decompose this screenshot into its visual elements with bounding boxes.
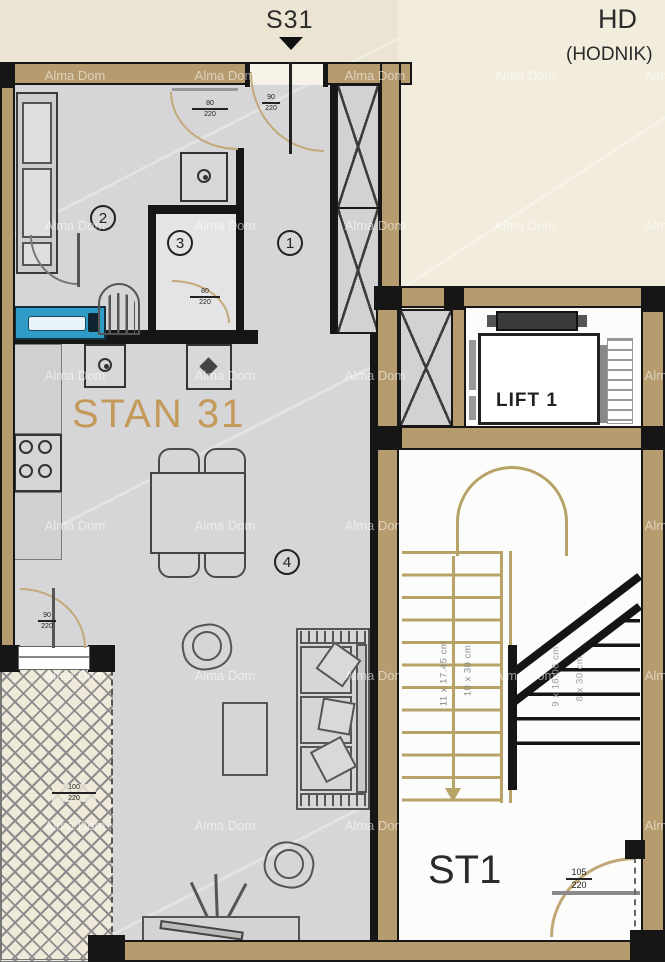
wc-top-wall bbox=[148, 205, 240, 214]
corridor-wall-vertical bbox=[380, 62, 401, 308]
bathtub-inner bbox=[28, 316, 86, 331]
unit-marker-arrow bbox=[279, 37, 303, 50]
wall-post bbox=[374, 426, 402, 450]
wall-post bbox=[374, 286, 402, 310]
wc-left-wall bbox=[148, 205, 156, 332]
wall-post bbox=[88, 935, 125, 962]
outer-wall-left bbox=[0, 62, 15, 654]
lift-guide-rail bbox=[469, 340, 476, 390]
wall-post bbox=[625, 840, 645, 859]
lift-guide-rail bbox=[600, 345, 607, 423]
room-number-4: 4 bbox=[274, 549, 300, 575]
installation-shaft bbox=[399, 309, 453, 427]
dining-table bbox=[150, 472, 246, 554]
outer-wall-bottom bbox=[88, 940, 665, 962]
radiator bbox=[98, 283, 140, 335]
wall-post bbox=[0, 62, 15, 88]
sofa-cushion bbox=[317, 697, 355, 735]
stair-door-leaf bbox=[552, 891, 640, 895]
armchair-seat bbox=[274, 849, 304, 879]
entrance-door-dim: 90220 bbox=[262, 94, 280, 112]
stair-spine bbox=[500, 551, 503, 803]
wall-post bbox=[444, 286, 464, 310]
wall-post bbox=[641, 286, 665, 312]
room-door-dim: 80220 bbox=[192, 100, 228, 118]
wall-post bbox=[0, 645, 20, 672]
lift-wall-inner bbox=[451, 307, 466, 428]
room-number-1: 1 bbox=[277, 230, 303, 256]
balcony-window bbox=[18, 646, 90, 670]
stair-note-left-tread: 10 x 30 cm bbox=[463, 606, 474, 736]
stair-door-dim: 105220 bbox=[566, 868, 592, 890]
wall-post bbox=[88, 645, 115, 672]
stair-door-dashed bbox=[634, 857, 636, 937]
corridor-wall-horizontal bbox=[380, 286, 665, 308]
room-number-2: 2 bbox=[90, 205, 116, 231]
room-door-leaf bbox=[172, 88, 238, 91]
stove-burner bbox=[19, 440, 33, 454]
stove-burner bbox=[38, 440, 52, 454]
zone-code-label: HD bbox=[598, 4, 637, 35]
unit-marker-label: S31 bbox=[266, 6, 313, 35]
washing-machine-dot bbox=[104, 364, 109, 369]
balcony-floor bbox=[0, 650, 113, 962]
stair-note-left-riser: 11 x 17.45 cm bbox=[439, 609, 450, 739]
kitchen-counter bbox=[14, 344, 62, 434]
wardrobe-shelf bbox=[22, 168, 52, 238]
hall-partition-wall bbox=[236, 148, 244, 332]
stairwell-label: ST1 bbox=[428, 848, 501, 893]
stair-note-right-riser: 9 x 18.06 cm bbox=[551, 612, 562, 742]
floor-plan: 100220 bbox=[0, 0, 665, 962]
stair-direction-line bbox=[452, 556, 455, 790]
lift-label: LIFT 1 bbox=[496, 390, 558, 412]
kitchen-counter bbox=[14, 492, 62, 560]
installation-shaft bbox=[336, 207, 380, 334]
room-number-3: 3 bbox=[167, 230, 193, 256]
wall-post bbox=[630, 930, 665, 962]
stair-flight-left bbox=[402, 551, 512, 803]
stove-burner bbox=[19, 464, 33, 478]
room-number-text: 4 bbox=[283, 554, 291, 571]
zone-name-label: (HODNIK) bbox=[566, 44, 653, 66]
stairwell-wall-top bbox=[376, 426, 665, 450]
lift-guide-rail bbox=[469, 396, 476, 420]
sofa-armrest bbox=[300, 793, 366, 806]
stove-burner bbox=[38, 464, 52, 478]
apartment-name: STAN 31 bbox=[72, 392, 245, 437]
boiler-dot bbox=[203, 175, 208, 180]
lift-motor-mount bbox=[578, 315, 587, 327]
outer-wall-right bbox=[641, 286, 665, 962]
stairwell-wall-left bbox=[376, 286, 399, 942]
lift-motor bbox=[496, 311, 578, 331]
balcony-door-dim: 90220 bbox=[38, 612, 56, 630]
coffee-table bbox=[222, 702, 268, 776]
stair-note-right-tread: 8 x 30 cm bbox=[575, 614, 586, 744]
wall-post bbox=[641, 426, 665, 450]
room-number-text: 1 bbox=[286, 235, 294, 252]
installation-shaft bbox=[336, 84, 380, 209]
sofa-backrest bbox=[356, 644, 367, 793]
stair-direction-arrow bbox=[445, 788, 461, 802]
balcony-edge-dashed bbox=[111, 650, 113, 962]
outer-wall-top bbox=[0, 62, 412, 85]
lift-door-track bbox=[607, 338, 633, 424]
room-number-text: 2 bbox=[99, 210, 107, 227]
armchair-seat bbox=[192, 631, 222, 661]
wc-door-dim: 80220 bbox=[190, 288, 220, 306]
room-number-text: 3 bbox=[176, 235, 184, 252]
wardrobe-shelf bbox=[22, 102, 52, 164]
closet-door-leaf bbox=[77, 233, 80, 287]
entrance-door-leaf bbox=[289, 62, 292, 154]
lift-motor-mount bbox=[487, 315, 496, 327]
balcony-window-dim: 100220 bbox=[52, 784, 96, 802]
